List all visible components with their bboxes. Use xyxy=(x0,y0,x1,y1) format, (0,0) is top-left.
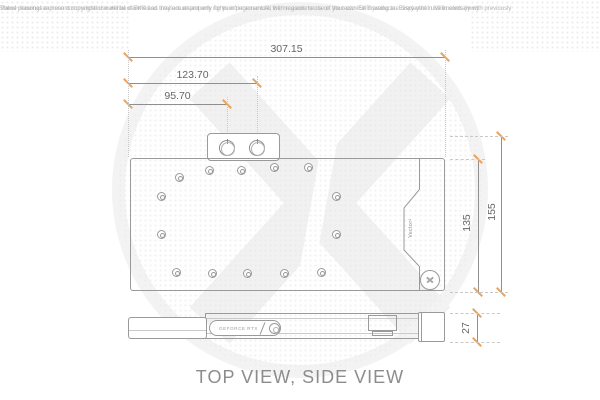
dim-side-thickness-line xyxy=(477,313,478,342)
ek-logo-badge xyxy=(420,270,440,290)
extension-line xyxy=(450,292,508,293)
screw-hole xyxy=(332,192,341,201)
badge-slash xyxy=(260,322,266,334)
vector-label: Vector² xyxy=(406,208,416,248)
dim-side-thickness-label: 27 xyxy=(459,316,473,340)
side-right-section-line xyxy=(421,313,422,341)
dim-total-width-line xyxy=(128,57,445,58)
dim-port1-line xyxy=(128,104,227,105)
screw-hole xyxy=(317,268,326,277)
screw-hole xyxy=(304,163,313,172)
technical-drawing-canvas: These drawings represent copyrighted mat… xyxy=(0,0,600,400)
extension-line xyxy=(450,136,508,137)
screw-hole xyxy=(172,268,181,277)
view-title: TOP VIEW, SIDE VIEW xyxy=(0,367,600,388)
screw-hole xyxy=(157,230,166,239)
dim-port2-line xyxy=(128,83,257,84)
screw-hole xyxy=(280,269,289,278)
geforce-badge: GEFORCE RTX xyxy=(209,320,281,336)
badge-ek-circle-icon xyxy=(269,323,280,334)
screw-hole xyxy=(237,166,246,175)
screw-hole xyxy=(205,166,214,175)
dim-port2-label: 123.70 xyxy=(128,69,257,81)
screw-hole xyxy=(332,230,341,239)
side-right-section xyxy=(418,312,445,342)
extension-line xyxy=(128,50,129,157)
extension-line xyxy=(450,342,500,343)
screw-hole xyxy=(243,269,252,278)
extension-line xyxy=(257,76,258,140)
screw-hole xyxy=(208,269,217,278)
side-left-section-line xyxy=(129,330,206,331)
side-left-section xyxy=(128,317,207,339)
port-outlet xyxy=(249,140,265,156)
port-inlet xyxy=(219,140,235,156)
extension-line xyxy=(450,313,500,314)
dim-total-width-label: 307.15 xyxy=(128,43,445,55)
geforce-label: GEFORCE RTX xyxy=(219,326,258,331)
side-clip xyxy=(368,315,397,331)
dim-block-height-line xyxy=(478,159,479,292)
dim-total-height-line xyxy=(501,136,502,292)
extension-line xyxy=(450,159,485,160)
terminal-block xyxy=(207,133,280,161)
screw-hole xyxy=(157,192,166,201)
disclaimer-line-2: stated personal and non commercial use w… xyxy=(0,6,478,14)
extension-line xyxy=(445,50,446,157)
dim-port1-label: 95.70 xyxy=(128,90,227,102)
screw-hole xyxy=(175,173,184,182)
screw-hole xyxy=(270,163,279,172)
dim-total-height-label: 155 xyxy=(485,200,499,224)
side-clip-tab xyxy=(372,331,393,336)
dim-block-height-label: 135 xyxy=(460,211,474,235)
